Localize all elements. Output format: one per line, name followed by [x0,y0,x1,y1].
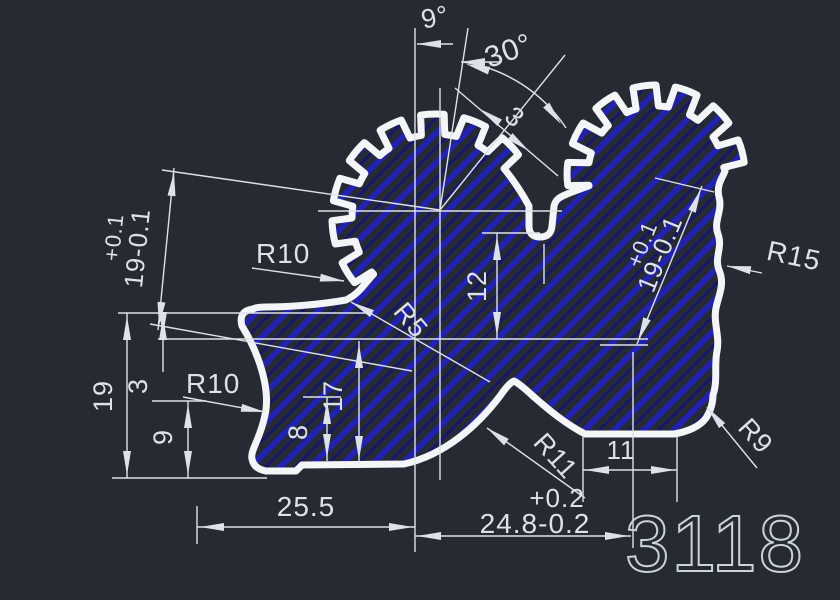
drawing-number: 3118 [625,499,805,588]
dim-17[interactable]: 17 [318,380,348,412]
dim-11[interactable]: 11 [607,435,636,465]
dim-8[interactable]: 8 [283,424,313,440]
dim-9[interactable]: 9 [148,429,178,445]
dim-r10-block[interactable]: R10 [186,368,240,399]
dim-19[interactable]: 19 [88,380,118,412]
dim-r10-gear[interactable]: R10 [256,238,310,269]
cad-drawing-area[interactable]: 9° 30° 3 +0.1 19-0.1 +0.1 19-0.1 R10 R10… [0,0,840,600]
dim-24-8-value[interactable]: 24.8-0.2 [480,508,591,539]
cad-canvas[interactable]: 9° 30° 3 +0.1 19-0.1 +0.1 19-0.1 R10 R10… [0,0,840,600]
dim-3[interactable]: 3 [123,378,153,394]
dim-25-5[interactable]: 25.5 [277,491,336,522]
dim-12[interactable]: 12 [462,270,492,302]
